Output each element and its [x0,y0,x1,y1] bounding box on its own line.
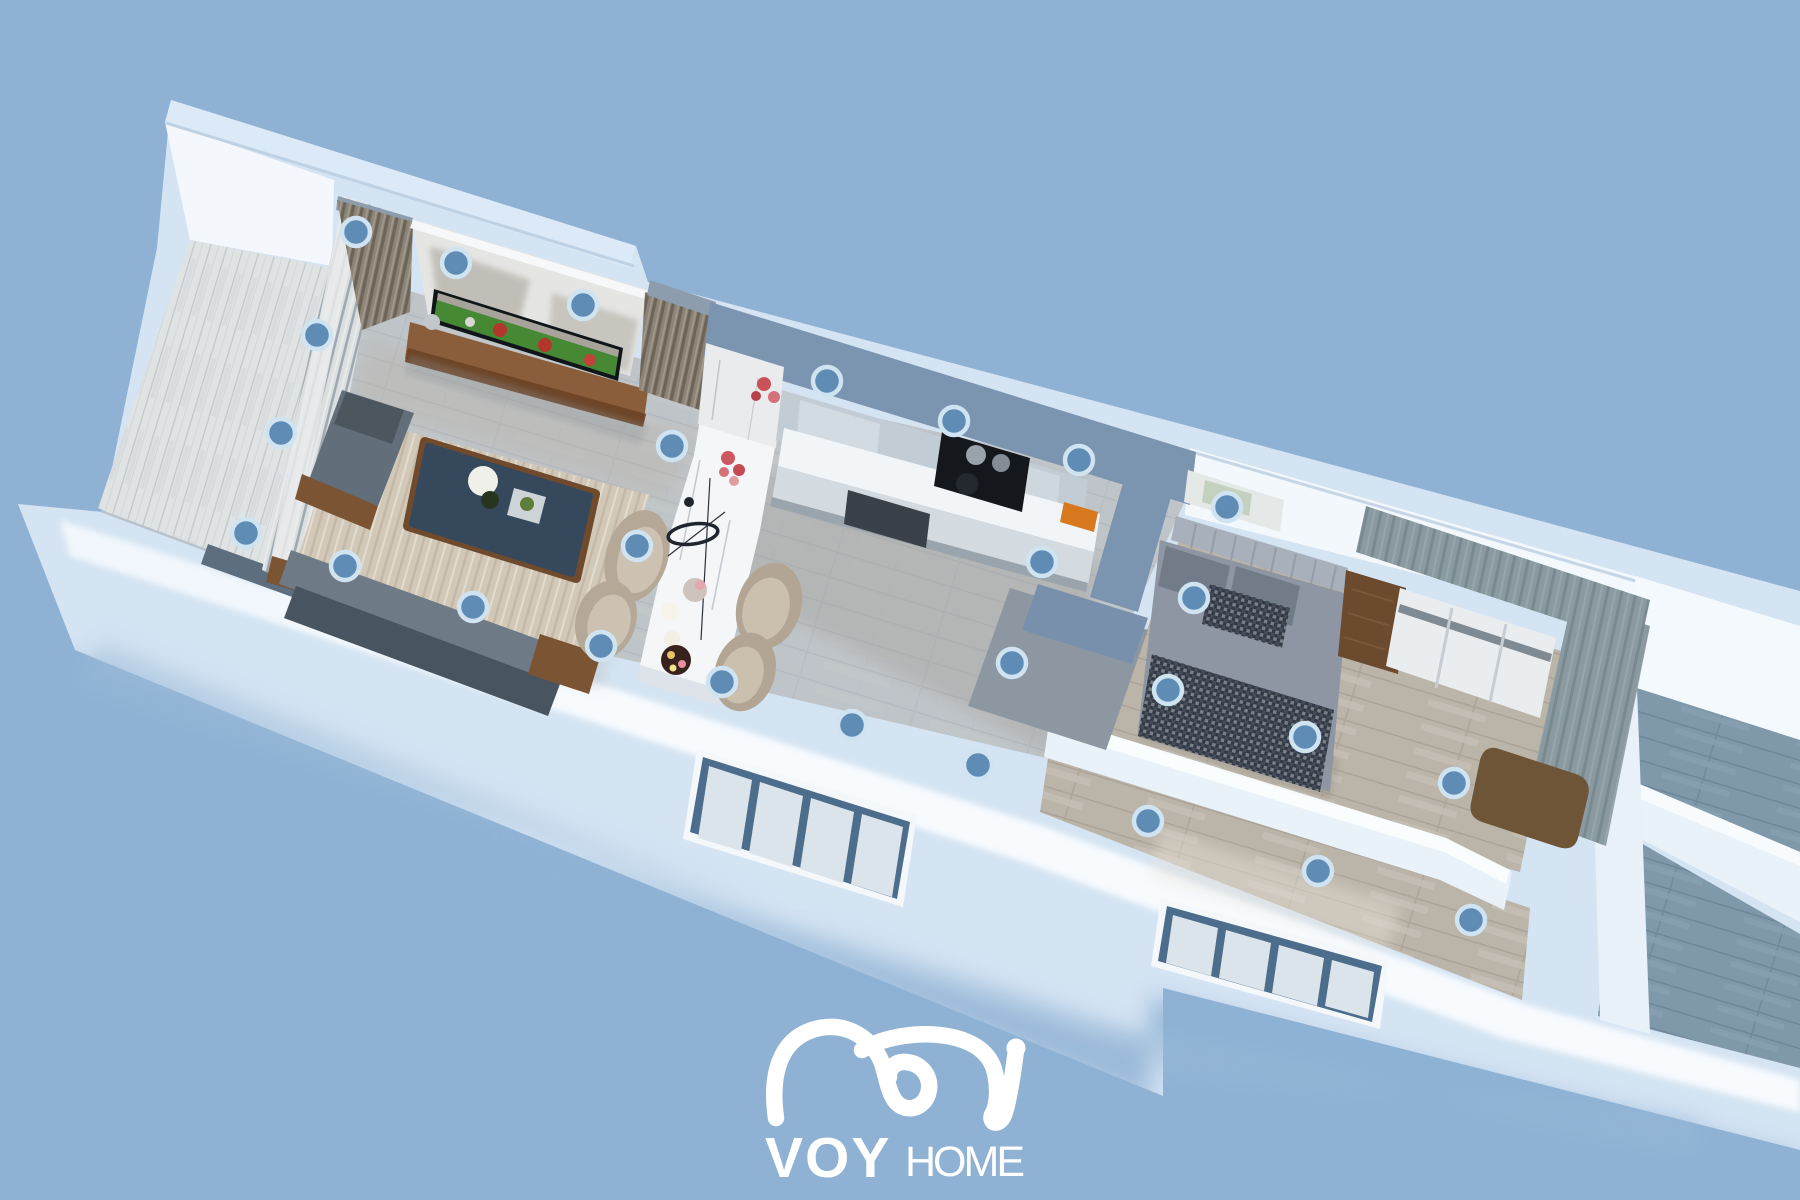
svg-text:HOME: HOME [905,1138,1023,1186]
svg-text:VOY: VOY [765,1126,891,1190]
